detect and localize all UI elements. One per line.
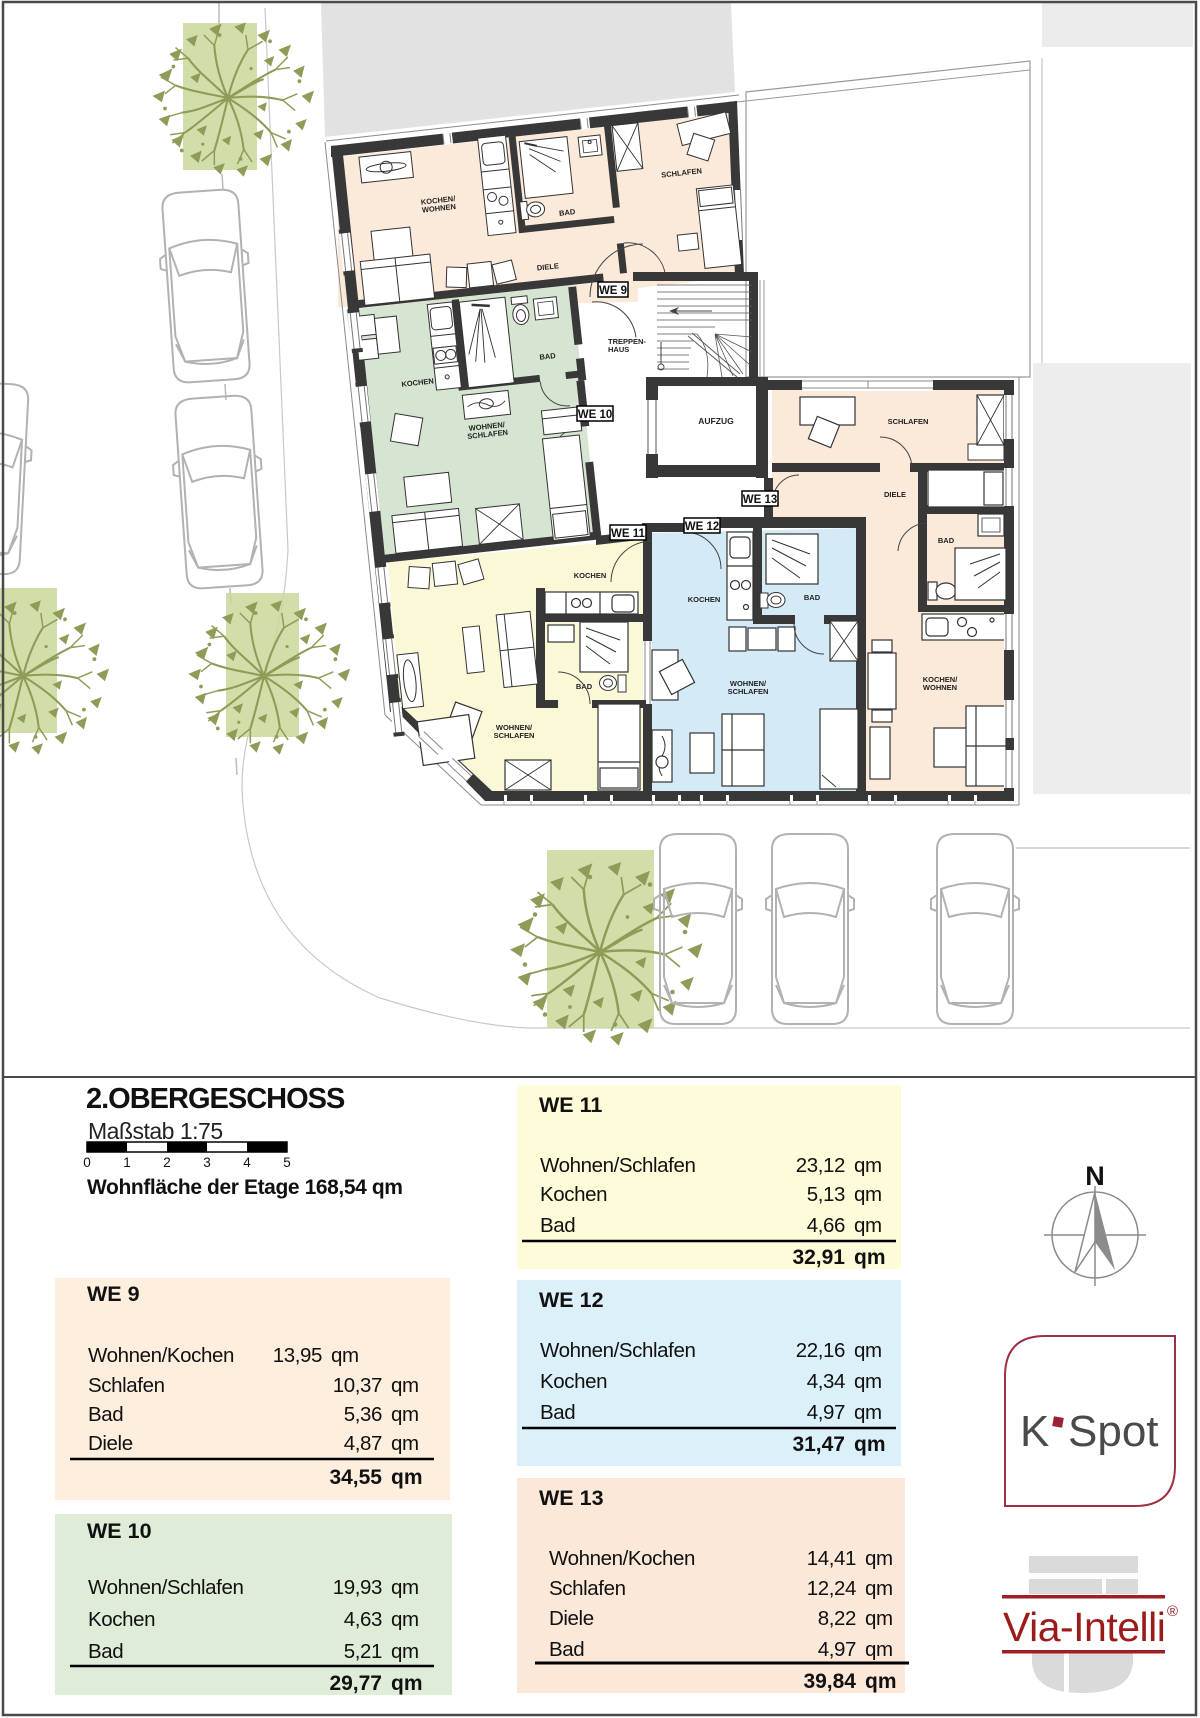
svg-text:1: 1 — [123, 1155, 131, 1170]
svg-text:0: 0 — [83, 1155, 91, 1170]
svg-text:Schlafen: Schlafen — [88, 1374, 165, 1397]
svg-text:qm: qm — [854, 1433, 886, 1456]
svg-text:qm: qm — [854, 1246, 886, 1269]
svg-text:5,36: 5,36 — [344, 1403, 382, 1426]
svg-text:N: N — [1085, 1161, 1105, 1191]
svg-text:BAD: BAD — [559, 207, 577, 218]
svg-text:Diele: Diele — [549, 1607, 594, 1630]
svg-text:SCHLAFEN: SCHLAFEN — [888, 417, 929, 426]
svg-text:qm: qm — [865, 1638, 893, 1661]
svg-text:Maßstab 1:75: Maßstab 1:75 — [88, 1118, 223, 1144]
svg-text:WE 12: WE 12 — [685, 521, 720, 533]
svg-text:qm: qm — [391, 1466, 423, 1489]
svg-text:qm: qm — [865, 1547, 893, 1570]
svg-text:SCHLAFEN: SCHLAFEN — [728, 687, 769, 696]
svg-text:13,95: 13,95 — [273, 1344, 322, 1367]
svg-text:19,93: 19,93 — [333, 1576, 382, 1599]
svg-text:12,24: 12,24 — [807, 1577, 856, 1600]
svg-text:39,84: 39,84 — [803, 1670, 856, 1693]
svg-text:KOCHEN: KOCHEN — [574, 571, 607, 580]
svg-text:WOHNEN: WOHNEN — [923, 683, 957, 692]
svg-text:3: 3 — [203, 1155, 211, 1170]
svg-text:qm: qm — [854, 1370, 882, 1393]
svg-text:22,16: 22,16 — [796, 1339, 845, 1362]
svg-text:DIELE: DIELE — [884, 490, 906, 499]
svg-text:Wohnfläche der Etage 168,54 qm: Wohnfläche der Etage 168,54 qm — [87, 1176, 403, 1199]
svg-text:2: 2 — [163, 1155, 171, 1170]
svg-text:4,34: 4,34 — [807, 1370, 845, 1393]
svg-text:31,47: 31,47 — [792, 1433, 845, 1456]
svg-text:Wohnen/Kochen: Wohnen/Kochen — [549, 1547, 695, 1570]
svg-text:Diele: Diele — [88, 1432, 133, 1455]
svg-text:Wohnen/Schlafen: Wohnen/Schlafen — [88, 1576, 243, 1599]
svg-text:qm: qm — [854, 1154, 882, 1177]
svg-text:Kochen: Kochen — [540, 1183, 607, 1206]
svg-text:32,91: 32,91 — [792, 1246, 845, 1269]
svg-text:qm: qm — [391, 1640, 419, 1663]
svg-text:4,97: 4,97 — [807, 1401, 845, 1424]
svg-text:KOCHEN: KOCHEN — [688, 595, 721, 604]
svg-text:5,21: 5,21 — [344, 1640, 382, 1663]
svg-text:qm: qm — [391, 1608, 419, 1631]
svg-text:5,13: 5,13 — [807, 1183, 845, 1206]
svg-text:WE 9: WE 9 — [599, 285, 627, 297]
svg-text:4: 4 — [243, 1155, 251, 1170]
svg-text:qm: qm — [391, 1432, 419, 1455]
svg-text:Bad: Bad — [540, 1401, 575, 1424]
svg-text:34,55: 34,55 — [329, 1466, 382, 1489]
svg-text:Kochen: Kochen — [88, 1608, 155, 1631]
svg-text:BAD: BAD — [938, 536, 955, 545]
svg-text:qm: qm — [391, 1403, 419, 1426]
svg-text:BAD: BAD — [804, 593, 821, 602]
svg-text:WE 10: WE 10 — [87, 1519, 152, 1543]
svg-text:WE 11: WE 11 — [611, 528, 645, 540]
svg-text:qm: qm — [865, 1670, 897, 1693]
svg-text:4,87: 4,87 — [344, 1432, 382, 1455]
svg-text:Bad: Bad — [88, 1403, 123, 1426]
svg-text:WE 9: WE 9 — [87, 1282, 140, 1306]
svg-text:BAD: BAD — [539, 351, 557, 362]
svg-text:23,12: 23,12 — [796, 1154, 845, 1177]
svg-text:Bad: Bad — [88, 1640, 123, 1663]
svg-text:Bad: Bad — [549, 1638, 584, 1661]
svg-text:4,97: 4,97 — [818, 1638, 856, 1661]
svg-text:2.OBERGESCHOSS: 2.OBERGESCHOSS — [86, 1083, 345, 1115]
svg-text:4,66: 4,66 — [807, 1214, 845, 1237]
svg-text:qm: qm — [854, 1401, 882, 1424]
svg-text:4,63: 4,63 — [344, 1608, 382, 1631]
svg-text:SCHLAFEN: SCHLAFEN — [494, 731, 535, 740]
svg-text:WE 11: WE 11 — [539, 1093, 602, 1117]
svg-text:8,22: 8,22 — [818, 1607, 856, 1630]
svg-text:Kochen: Kochen — [540, 1370, 607, 1393]
svg-text:Schlafen: Schlafen — [549, 1577, 626, 1600]
svg-text:Wohnen/Schlafen: Wohnen/Schlafen — [540, 1339, 695, 1362]
svg-text:Wohnen/Schlafen: Wohnen/Schlafen — [540, 1154, 695, 1177]
svg-text:qm: qm — [331, 1344, 359, 1367]
svg-text:qm: qm — [854, 1214, 882, 1237]
svg-text:HAUS: HAUS — [608, 345, 629, 354]
svg-text:qm: qm — [391, 1672, 423, 1695]
svg-text:qm: qm — [854, 1183, 882, 1206]
svg-text:WE 12: WE 12 — [539, 1288, 604, 1312]
svg-text:qm: qm — [854, 1339, 882, 1362]
svg-text:5: 5 — [283, 1155, 291, 1170]
svg-text:Spot: Spot — [1068, 1407, 1159, 1456]
svg-text:qm: qm — [865, 1607, 893, 1630]
svg-text:14,41: 14,41 — [807, 1547, 856, 1570]
svg-text:AUFZUG: AUFZUG — [698, 416, 734, 426]
svg-text:29,77: 29,77 — [329, 1672, 382, 1695]
svg-text:K: K — [1020, 1407, 1049, 1456]
svg-text:10,37: 10,37 — [333, 1374, 382, 1397]
svg-text:Wohnen/Kochen: Wohnen/Kochen — [88, 1344, 234, 1367]
svg-text:qm: qm — [391, 1374, 419, 1397]
svg-text:Via-Intelli: Via-Intelli — [1003, 1604, 1165, 1650]
svg-text:qm: qm — [391, 1576, 419, 1599]
svg-text:®: ® — [1167, 1603, 1178, 1620]
svg-text:qm: qm — [865, 1577, 893, 1600]
svg-text:WE 13: WE 13 — [743, 494, 778, 506]
svg-text:WE 13: WE 13 — [539, 1486, 604, 1510]
svg-text:WE 10: WE 10 — [578, 409, 613, 421]
svg-text:Bad: Bad — [540, 1214, 575, 1237]
